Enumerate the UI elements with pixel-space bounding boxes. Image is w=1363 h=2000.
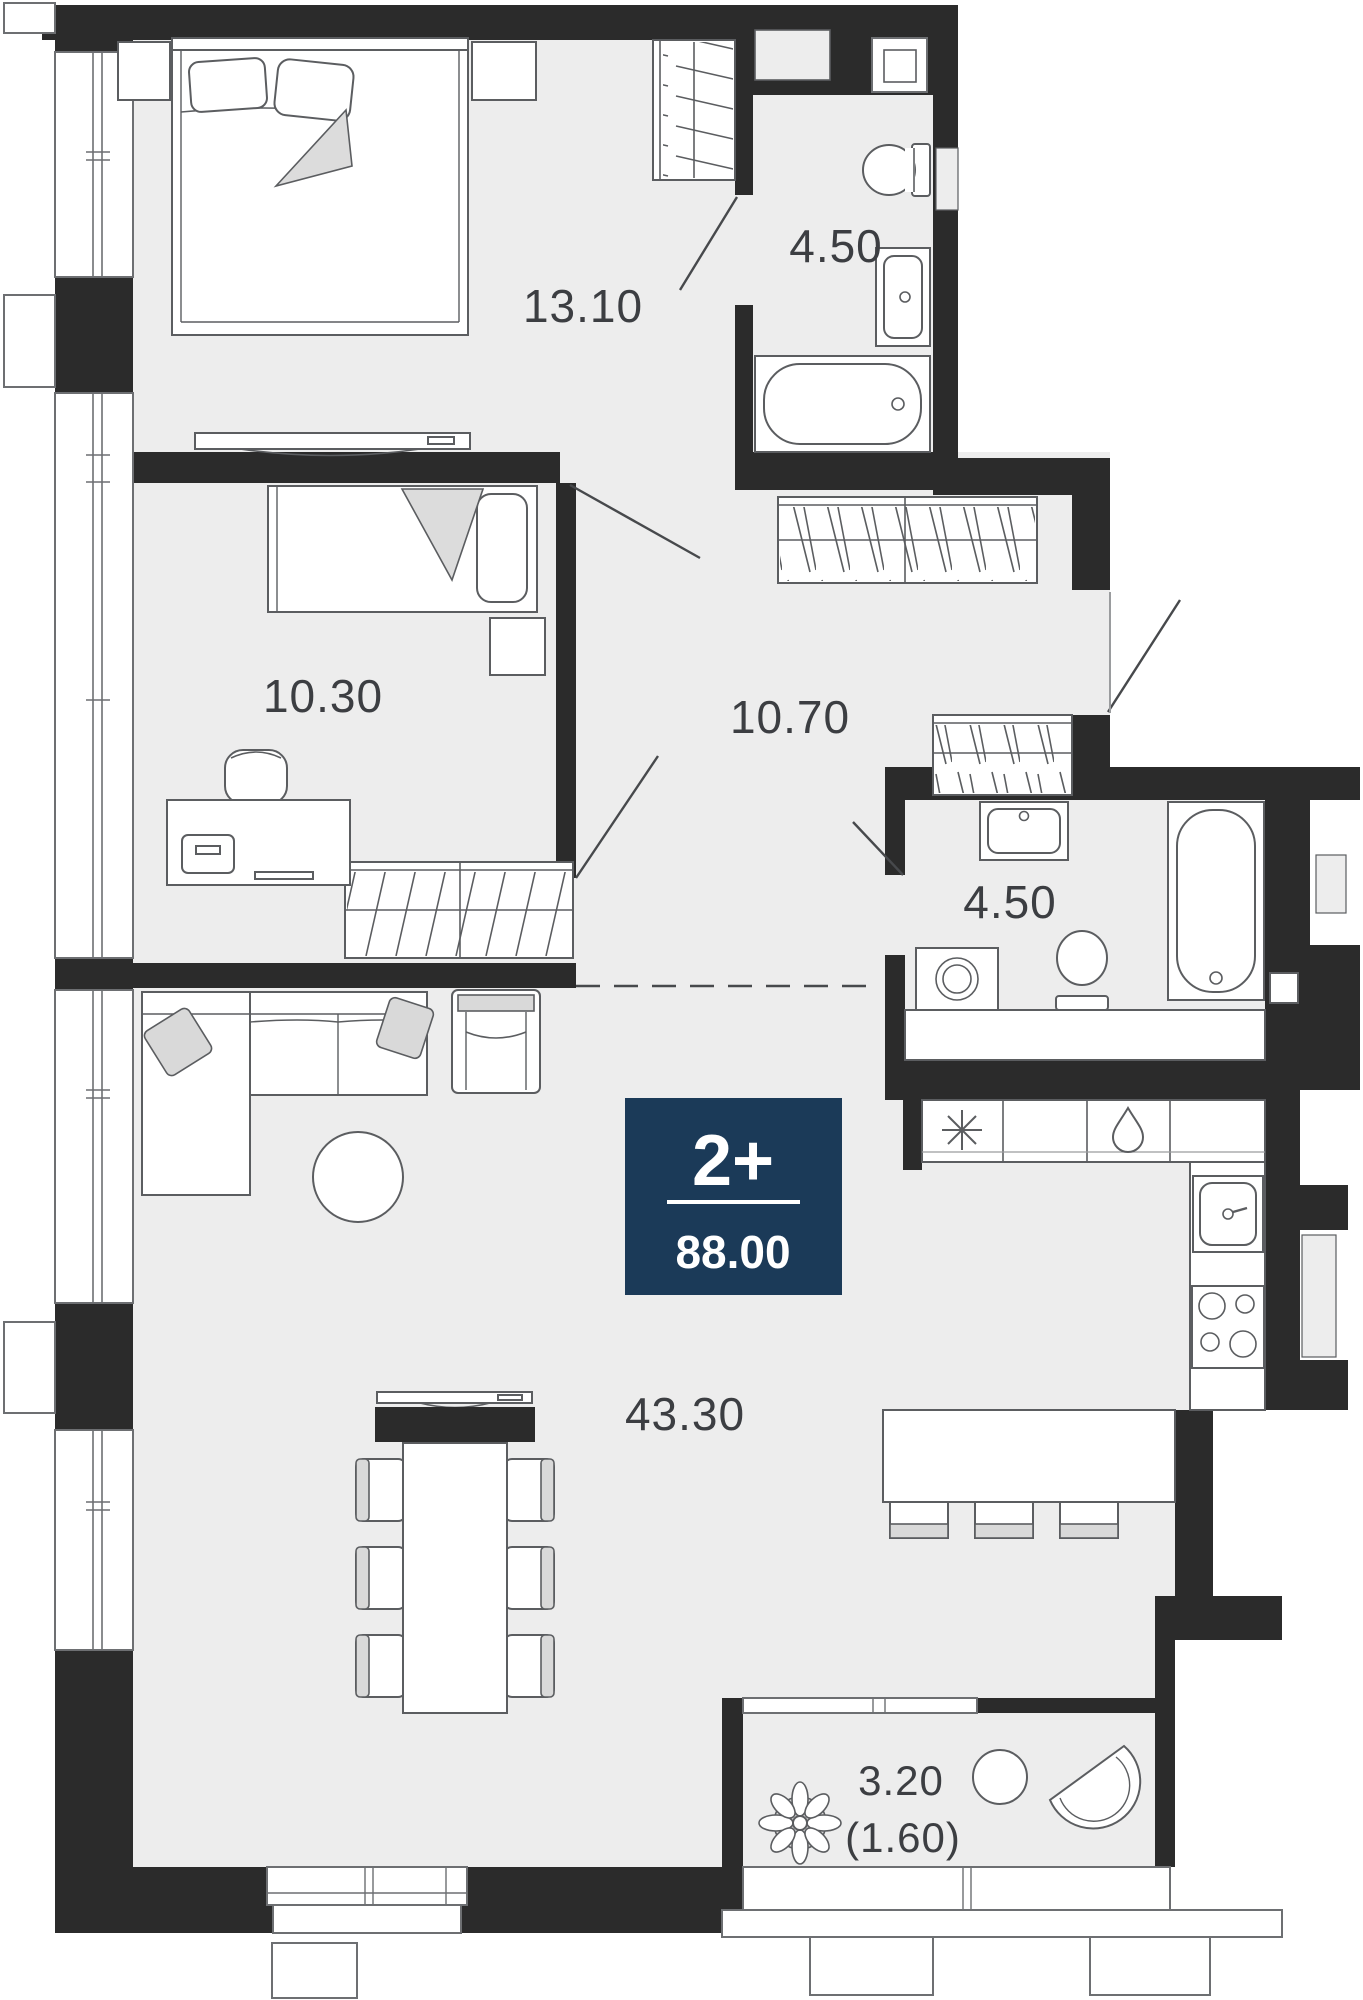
nightstand <box>472 42 536 100</box>
dining-table <box>403 1443 507 1713</box>
window-balcony-bottom <box>722 1867 1282 1995</box>
area-badge: 2+ 88.00 <box>625 1098 842 1295</box>
label-balcony-area: 3.20 <box>858 1757 944 1804</box>
dining-set <box>356 1443 554 1713</box>
right-recess <box>1302 1235 1336 1357</box>
wardrobe-hallway-top <box>778 497 1037 583</box>
wardrobe-hallway-right <box>933 715 1072 795</box>
window-balcony-top <box>743 1698 977 1713</box>
right-recess <box>1316 855 1346 913</box>
double-bed <box>172 38 468 335</box>
label-bedroom-main: 13.10 <box>523 280 643 332</box>
label-living-kitchen: 43.30 <box>625 1388 745 1440</box>
pillow <box>188 57 267 112</box>
pillow <box>273 58 354 122</box>
bathtub-icon <box>755 356 930 452</box>
sink-icon <box>876 248 930 346</box>
vent-notch <box>936 148 958 210</box>
kitchen-counter-right <box>1190 1162 1265 1410</box>
kitchen-counter-top <box>922 1100 1265 1162</box>
heater-box <box>1270 973 1298 1003</box>
window-left-2 <box>55 393 133 958</box>
toilet-icon <box>1056 931 1108 1010</box>
exterior-box <box>4 295 55 387</box>
bathroom-counter <box>905 1010 1265 1060</box>
stove-burners-icon <box>1192 1286 1264 1368</box>
exterior-box <box>4 1322 55 1413</box>
freezer-asterisk-icon <box>942 1110 982 1150</box>
bedside-unit <box>490 618 545 675</box>
badge-rooms-count: 2+ <box>692 1121 774 1201</box>
island-counter <box>883 1410 1175 1502</box>
armchair <box>452 990 540 1093</box>
floor-plan-canvas: 13.10 4.50 10.30 10.70 4.50 43.30 3.20 (… <box>0 0 1363 2000</box>
washing-machine-icon <box>916 948 998 1010</box>
badge-divider <box>667 1200 800 1204</box>
single-bed <box>268 486 537 612</box>
window-left-4 <box>55 1430 133 1650</box>
label-balcony-reduced: (1.60) <box>845 1814 961 1861</box>
floor-plan-page: 13.10 4.50 10.30 10.70 4.50 43.30 3.20 (… <box>0 0 1363 2000</box>
window-bottom-left <box>267 1867 467 1998</box>
label-hallway: 10.70 <box>730 691 850 743</box>
coffee-table <box>313 1132 403 1222</box>
toilet-icon <box>863 144 930 196</box>
wardrobe-bedroom-main <box>653 40 735 180</box>
label-bathroom-middle: 4.50 <box>963 876 1057 928</box>
sink-icon <box>980 802 1068 860</box>
bathtub-icon <box>1168 802 1264 1000</box>
nightstand <box>118 42 170 100</box>
shaft <box>872 38 927 92</box>
balcony-table <box>973 1750 1027 1804</box>
badge-total-area: 88.00 <box>675 1226 790 1278</box>
desk-chair <box>225 750 287 804</box>
door-entry-leaf <box>1108 600 1180 712</box>
pillow <box>477 494 527 602</box>
wall-niche <box>755 30 830 80</box>
kitchen-sink-icon <box>1193 1176 1263 1252</box>
window-left-3 <box>55 990 133 1303</box>
tv-unit <box>375 1392 535 1442</box>
wardrobe-bedroom-second <box>345 862 573 958</box>
exterior-box <box>4 3 55 33</box>
label-bedroom-second: 10.30 <box>263 670 383 722</box>
label-bathroom-top: 4.50 <box>789 220 883 272</box>
